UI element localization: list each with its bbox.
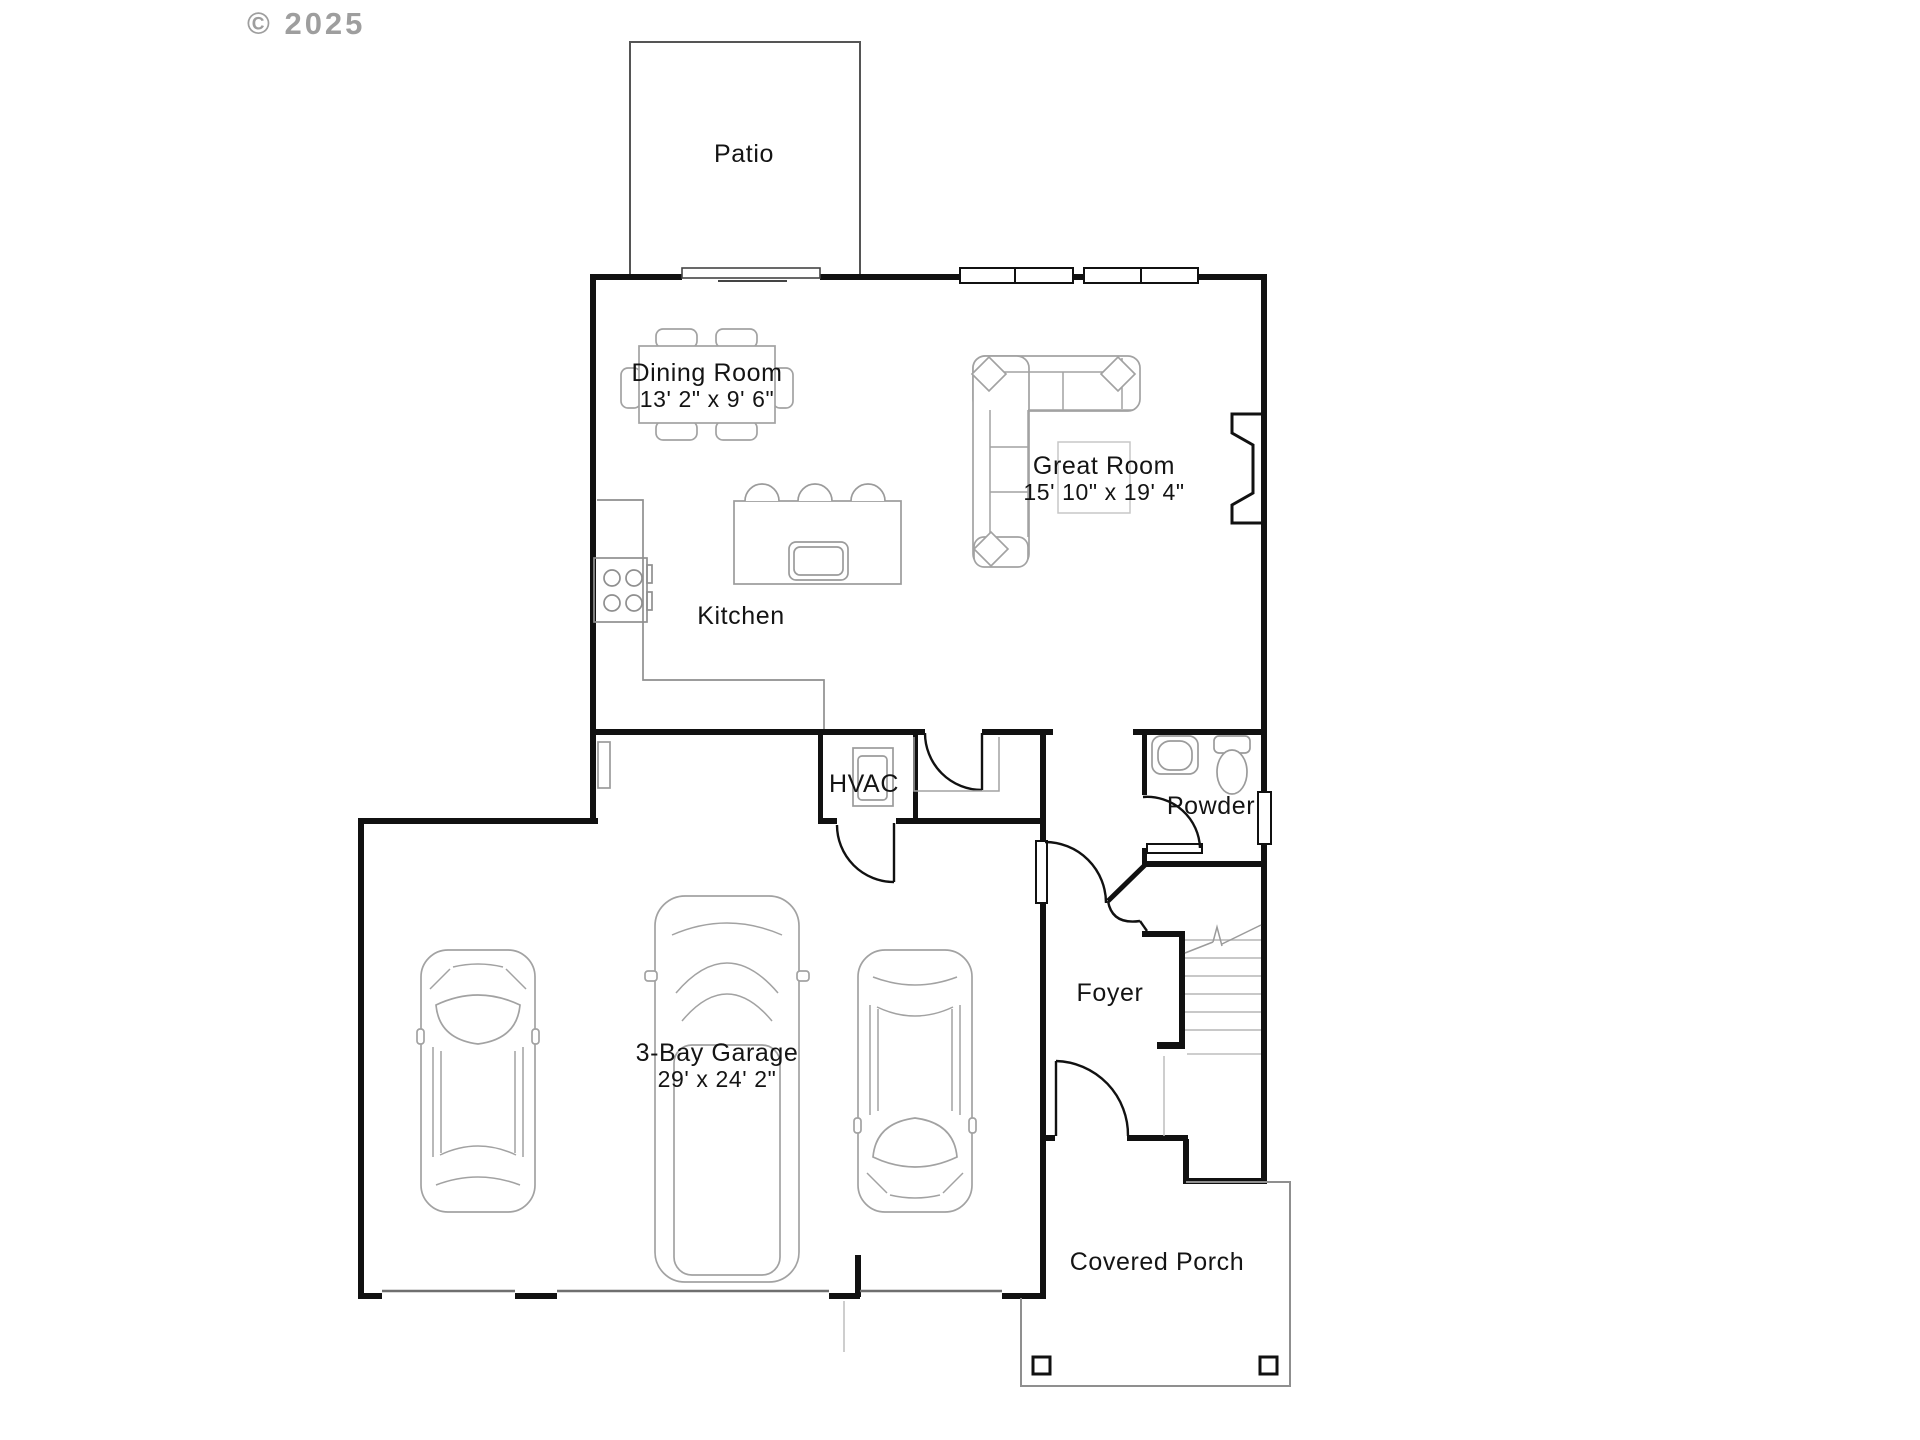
- wall-segment: [1127, 1135, 1188, 1141]
- angled-wall: [1108, 864, 1146, 901]
- porch-post: [1033, 1357, 1050, 1374]
- powder-fixtures: [1152, 736, 1250, 794]
- wall-segment: [358, 818, 364, 1299]
- stair-treads: [1185, 940, 1261, 1030]
- wall-segment: [1198, 274, 1267, 280]
- burner-icon: [604, 595, 620, 611]
- window: [960, 268, 1073, 283]
- wall-segment: [896, 818, 1040, 824]
- kitchen-fixtures: [594, 484, 901, 788]
- wall-segment: [1002, 1293, 1046, 1299]
- understair-lines: [1164, 1054, 1261, 1136]
- toilet-icon: [1217, 750, 1247, 794]
- sink-bowl: [1158, 741, 1192, 770]
- wall-segment: [818, 729, 823, 823]
- stool-icon: [851, 484, 885, 501]
- wall-segment: [1183, 1139, 1189, 1184]
- garage-label: 3-Bay Garage: [636, 1039, 799, 1067]
- burner-icon: [626, 595, 642, 611]
- stove-knob: [647, 565, 652, 583]
- wall-segment: [1142, 729, 1147, 795]
- wall-segment: [515, 1293, 557, 1299]
- angled-wall-cap: [1108, 901, 1147, 931]
- dining-room-dims: 13' 2" x 9' 6": [640, 386, 775, 412]
- wall-segment: [1142, 931, 1185, 937]
- foyer-label: Foyer: [1077, 979, 1144, 1007]
- burner-icon: [604, 570, 620, 586]
- wall-segment: [1133, 729, 1267, 735]
- chair-icon: [716, 329, 757, 348]
- wall-segment: [1179, 931, 1185, 1049]
- wall-segment: [592, 274, 682, 280]
- stool-icon: [798, 484, 832, 501]
- wall-segment: [1261, 274, 1267, 794]
- great-room-dims: 15' 10" x 19' 4": [1023, 479, 1184, 505]
- sink-basin: [794, 547, 843, 575]
- wall-segment: [590, 274, 596, 734]
- stool-icon: [745, 484, 779, 501]
- pantry-door-swing: [925, 733, 982, 790]
- covered-porch-label: Covered Porch: [1070, 1248, 1245, 1276]
- garage-entry-door-leaf: [1036, 841, 1047, 903]
- kitchen-label: Kitchen: [697, 602, 785, 630]
- powder-label: Powder: [1167, 792, 1255, 820]
- wall-segment: [818, 818, 837, 824]
- chair-icon: [656, 421, 697, 440]
- wall-segment: [1040, 729, 1046, 841]
- hvac-door-swing: [837, 825, 894, 882]
- wall-segment: [358, 818, 598, 824]
- porch-outline: [1021, 1182, 1290, 1386]
- wall-segment: [1157, 1042, 1185, 1049]
- copyright-watermark: © 2025: [247, 6, 365, 41]
- wall-segment: [820, 274, 960, 280]
- floor-plan: © 2025 Patio Dining Room 13' 2" x 9' 6" …: [0, 0, 1920, 1440]
- chair-icon: [656, 329, 697, 348]
- stair-up-line: [1185, 925, 1261, 953]
- wall-segment: [590, 734, 596, 823]
- wall-segment: [1040, 1135, 1055, 1141]
- floor-plan-page: © 2025 Patio Dining Room 13' 2" x 9' 6" …: [0, 0, 1920, 1440]
- great-room-label: Great Room: [1033, 452, 1175, 480]
- wall-segment: [1040, 902, 1046, 1298]
- chair-icon: [716, 421, 757, 440]
- wall-segment: [1073, 274, 1084, 280]
- front-door-swing: [1056, 1061, 1128, 1136]
- water-heater: [598, 742, 610, 788]
- porch-post: [1260, 1357, 1277, 1374]
- powder-door-leaf: [1147, 844, 1202, 853]
- stove: [594, 558, 647, 622]
- wall-segment: [1261, 843, 1267, 1183]
- patio-label: Patio: [714, 140, 774, 168]
- car-icon: [854, 950, 976, 1212]
- burner-icon: [626, 570, 642, 586]
- wall-segment: [1142, 861, 1267, 867]
- sofa-chaise: [973, 356, 1029, 566]
- dining-room-label: Dining Room: [631, 359, 782, 387]
- car-icon: [417, 950, 539, 1212]
- staircase: [1164, 925, 1261, 1136]
- fireplace: [1232, 414, 1261, 523]
- hvac-label: HVAC: [829, 770, 899, 798]
- garage-dims: 29' x 24' 2": [658, 1066, 777, 1092]
- sliding-door: [682, 268, 820, 278]
- wall-segment: [592, 729, 925, 735]
- garage-entry-door-swing: [1045, 842, 1106, 903]
- wall-segment: [358, 1293, 382, 1299]
- window: [1258, 792, 1271, 844]
- stove-knob: [647, 592, 652, 610]
